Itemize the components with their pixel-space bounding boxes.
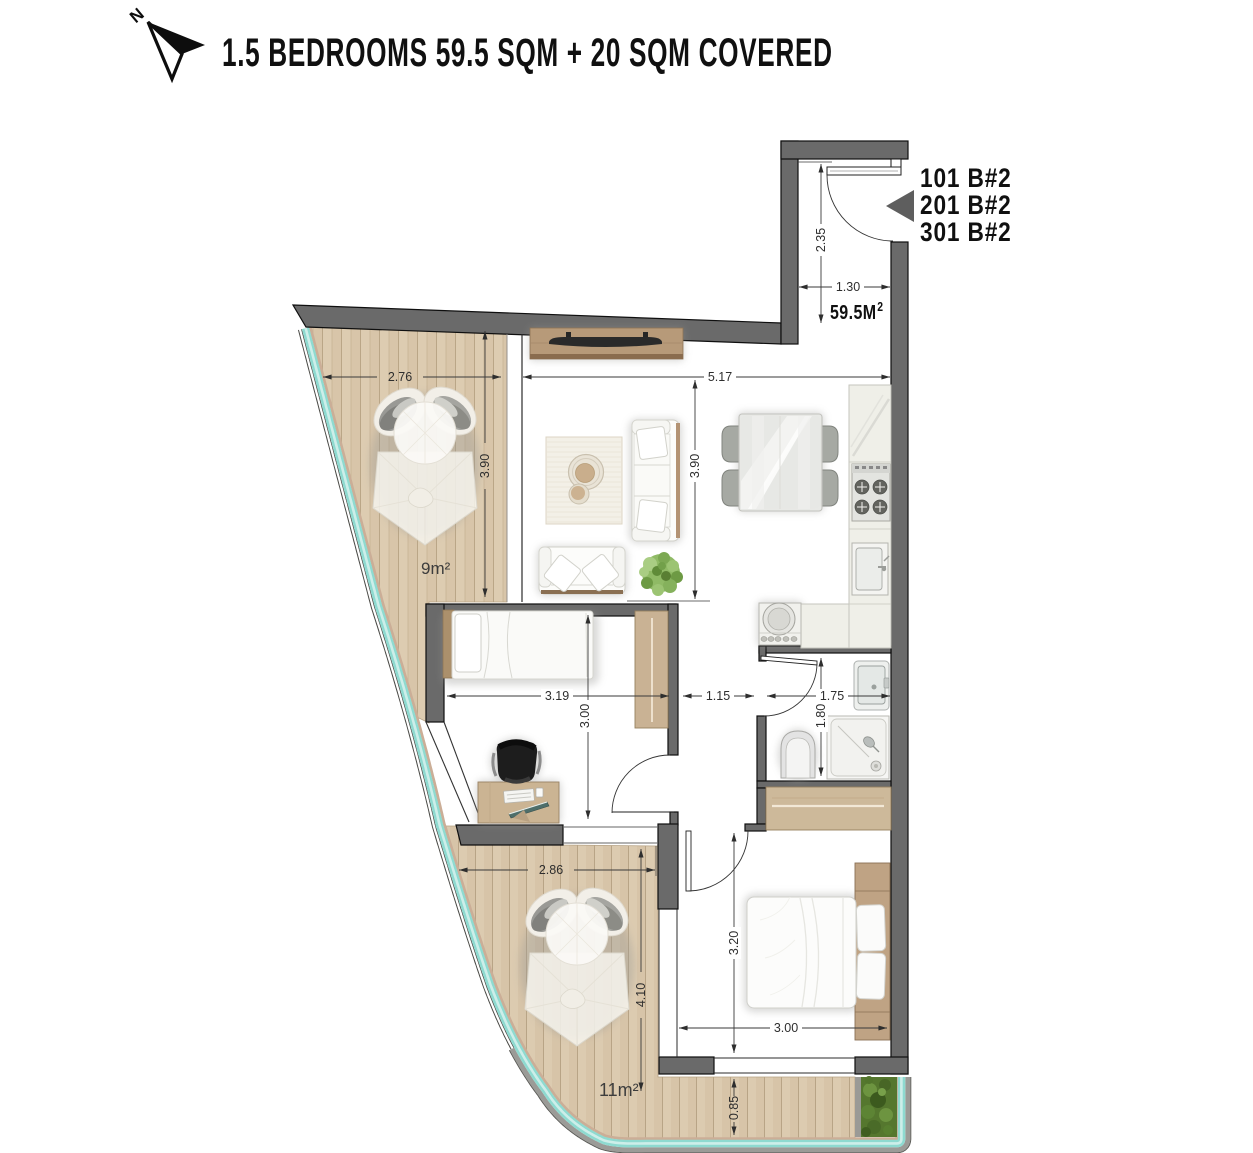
- svg-text:3.19: 3.19: [545, 689, 569, 703]
- svg-text:0.85: 0.85: [727, 1096, 741, 1120]
- svg-text:2.35: 2.35: [814, 228, 828, 252]
- svg-text:4.10: 4.10: [634, 983, 648, 1007]
- svg-text:3.90: 3.90: [688, 454, 702, 478]
- svg-text:2.86: 2.86: [539, 863, 563, 877]
- svg-text:101 B#2: 101 B#2: [920, 163, 1012, 193]
- svg-text:3.20: 3.20: [727, 931, 741, 955]
- svg-text:9m²: 9m²: [421, 559, 451, 578]
- svg-text:3.90: 3.90: [478, 454, 492, 478]
- svg-text:2: 2: [877, 300, 883, 314]
- svg-text:3.00: 3.00: [774, 1021, 798, 1035]
- svg-text:301 B#2: 301 B#2: [920, 217, 1012, 247]
- svg-text:2.76: 2.76: [388, 370, 412, 384]
- svg-text:1.80: 1.80: [814, 704, 828, 728]
- svg-text:1.15: 1.15: [706, 689, 730, 703]
- svg-text:11m²: 11m²: [599, 1080, 639, 1100]
- svg-text:3.00: 3.00: [578, 704, 592, 728]
- svg-text:5.17: 5.17: [708, 370, 732, 384]
- svg-text:59.5M: 59.5M: [830, 301, 876, 323]
- svg-text:201 B#2: 201 B#2: [920, 190, 1012, 220]
- svg-text:1.5 BEDROOMS 59.5 SQM + 20 SQM: 1.5 BEDROOMS 59.5 SQM + 20 SQM COVERED: [222, 31, 833, 76]
- svg-text:1.30: 1.30: [836, 280, 860, 294]
